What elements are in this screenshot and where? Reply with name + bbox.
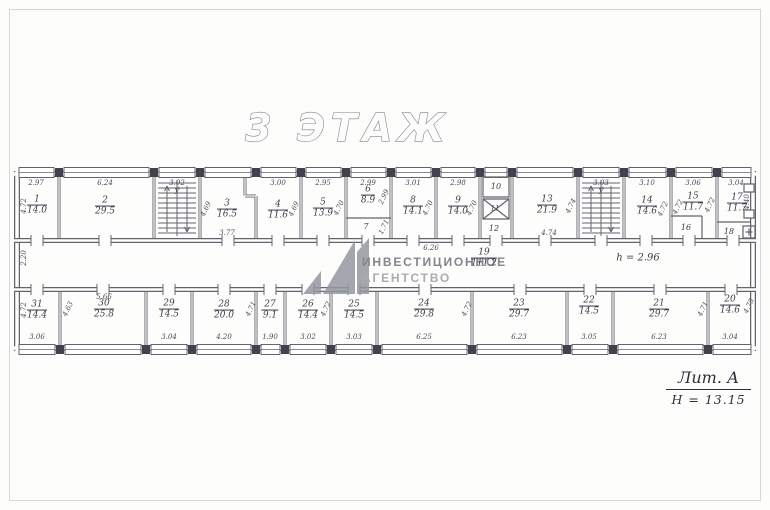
- room-label: 2914.5: [159, 300, 179, 321]
- room-area: 11.7: [683, 203, 703, 213]
- room-label: 2214.5: [579, 297, 599, 318]
- room-label: 2129.7: [649, 300, 669, 321]
- room-area: 16.5: [217, 210, 237, 220]
- dim-label: 3.06: [685, 179, 701, 187]
- room-label: 68.9: [361, 186, 375, 207]
- height-line: Н = 13.15: [666, 390, 751, 407]
- room-label: 7: [363, 223, 368, 231]
- stair-dim: 3.03: [593, 179, 609, 187]
- room-number: 19: [471, 249, 497, 259]
- room-label: 914.0: [448, 197, 468, 218]
- interior-walls-bottom: [60, 292, 708, 345]
- room-number: 2: [95, 197, 115, 207]
- dim-label: 6.25: [416, 333, 432, 341]
- floor-plan-sheet: 3 ЭТАЖ: [0, 0, 770, 510]
- room-number: 26: [298, 301, 318, 311]
- room-label: 18: [724, 228, 734, 236]
- room-label: 279.1: [261, 301, 278, 322]
- room-number: 30: [94, 300, 114, 310]
- room-label: 1414.6: [637, 197, 657, 218]
- room-number: 6: [361, 186, 375, 196]
- room-number: 24: [414, 300, 434, 310]
- dim-label: 6.24: [97, 179, 113, 187]
- corridor-label: 19111.2: [471, 249, 497, 270]
- dim-label: 3.04: [161, 333, 177, 341]
- room-area: 14.6: [720, 306, 740, 316]
- room-label: 2014.6: [720, 296, 740, 317]
- dim-label: 4.72: [20, 198, 28, 214]
- dim-label: 3.02: [300, 333, 316, 341]
- room-number: 27: [261, 301, 278, 311]
- room-number: 28: [214, 301, 234, 311]
- room-label: 1511.7: [683, 193, 703, 214]
- dim-label: 6.26: [423, 244, 439, 252]
- dim-label: 2.98: [450, 179, 466, 187]
- dim-label: 4.20: [216, 333, 232, 341]
- room-number: 29: [159, 300, 179, 310]
- room-label: 316.5: [217, 200, 237, 221]
- room-label: 3114.4: [27, 301, 47, 322]
- room-number: 25: [344, 301, 364, 311]
- litera-note: Лит. А Н = 13.15: [666, 368, 751, 407]
- dim-label: 3.03: [346, 333, 362, 341]
- room-area: 111.2: [471, 259, 497, 269]
- room-label: 2614.4: [298, 301, 318, 322]
- room-label: 1321.9: [537, 196, 557, 217]
- room-area: 21.9: [537, 206, 557, 216]
- dim-label: 3.05: [581, 333, 597, 341]
- room-label: 2329.7: [509, 300, 529, 321]
- dim-label: 3.01: [405, 179, 421, 187]
- dim-label: 2.97: [28, 179, 44, 187]
- room-number: 8: [403, 197, 423, 207]
- floor-title: 3 ЭТАЖ: [245, 106, 450, 150]
- room-label: 16: [681, 224, 691, 232]
- room-number: 4: [268, 201, 288, 211]
- room-area: 20.0: [214, 311, 234, 321]
- room-label: 12: [489, 225, 499, 233]
- dim-label: 3.04: [728, 179, 744, 187]
- room-area: 25.8: [94, 310, 114, 320]
- dim-label: 6.23: [651, 333, 667, 341]
- room-label: 229.5: [95, 197, 115, 218]
- room-area: 14.4: [298, 311, 318, 321]
- room-area: 29.7: [509, 310, 529, 320]
- stair-mark: Ў: [174, 188, 179, 196]
- room-number: 13: [537, 196, 557, 206]
- room-area: 14.6: [637, 207, 657, 217]
- room-area: 14.5: [344, 311, 364, 321]
- dim-label: 5.66: [96, 293, 112, 301]
- dim-label: 2.95: [315, 179, 331, 187]
- room-label: 513.9: [313, 199, 333, 220]
- room-label: 10: [491, 183, 501, 191]
- room-label: 3025.8: [94, 300, 114, 321]
- room-area: 9.1: [261, 311, 278, 321]
- dim-label: 3.04: [722, 333, 738, 341]
- room-number: 23: [509, 300, 529, 310]
- dim-label: 2.20: [20, 250, 28, 266]
- room-number: 22: [579, 297, 599, 307]
- dim-label: 3.06: [29, 333, 45, 341]
- room-area: 8.9: [361, 196, 375, 206]
- room-area: 14.0: [27, 206, 47, 216]
- room-area: 14.5: [579, 307, 599, 317]
- dim-label: 6.23: [511, 333, 527, 341]
- room-area: 29.5: [95, 207, 115, 217]
- room-label: 114.0: [27, 196, 47, 217]
- room-number: 14: [637, 197, 657, 207]
- room-number: 1: [27, 196, 47, 206]
- dim-label: 1.90: [262, 333, 278, 341]
- room-area: 29.8: [414, 310, 434, 320]
- litera-line: Лит. А: [666, 368, 751, 390]
- room-label: 2514.5: [344, 301, 364, 322]
- room-number: 21: [649, 300, 669, 310]
- watermark-logo: [303, 238, 369, 294]
- room-number: 31: [27, 301, 47, 311]
- room-label: 11: [491, 205, 500, 212]
- room-label: 2429.8: [414, 300, 434, 321]
- dim-label: 2.99: [360, 179, 376, 187]
- room-number: 3: [217, 200, 237, 210]
- room-label: 2820.0: [214, 301, 234, 322]
- room-area: 13.9: [313, 209, 333, 219]
- room-area: 14.5: [159, 310, 179, 320]
- stair-dim: 3.02: [169, 179, 185, 187]
- room-number: 5: [313, 199, 333, 209]
- dim-label: 3.10: [639, 179, 655, 187]
- dim-label: 4.74: [541, 229, 557, 237]
- watermark-text-line2: АГЕНТСТВО: [362, 271, 451, 285]
- dim-label: 4.40: [743, 194, 751, 210]
- room-area: 29.7: [649, 310, 669, 320]
- room-label: 411.6: [268, 201, 288, 222]
- height-note: h = 2.96: [616, 253, 659, 264]
- stair-mark: Ў: [598, 188, 603, 196]
- dim-label: 3.77: [219, 229, 235, 237]
- room-number: 20: [720, 296, 740, 306]
- room-label: 814.1: [403, 197, 423, 218]
- room-area: 14.4: [27, 311, 47, 321]
- room-number: 15: [683, 193, 703, 203]
- dim-label: 4.72: [20, 302, 28, 318]
- room-area: 11.6: [268, 211, 288, 221]
- room-number: 9: [448, 197, 468, 207]
- dim-label: 3.00: [270, 179, 286, 187]
